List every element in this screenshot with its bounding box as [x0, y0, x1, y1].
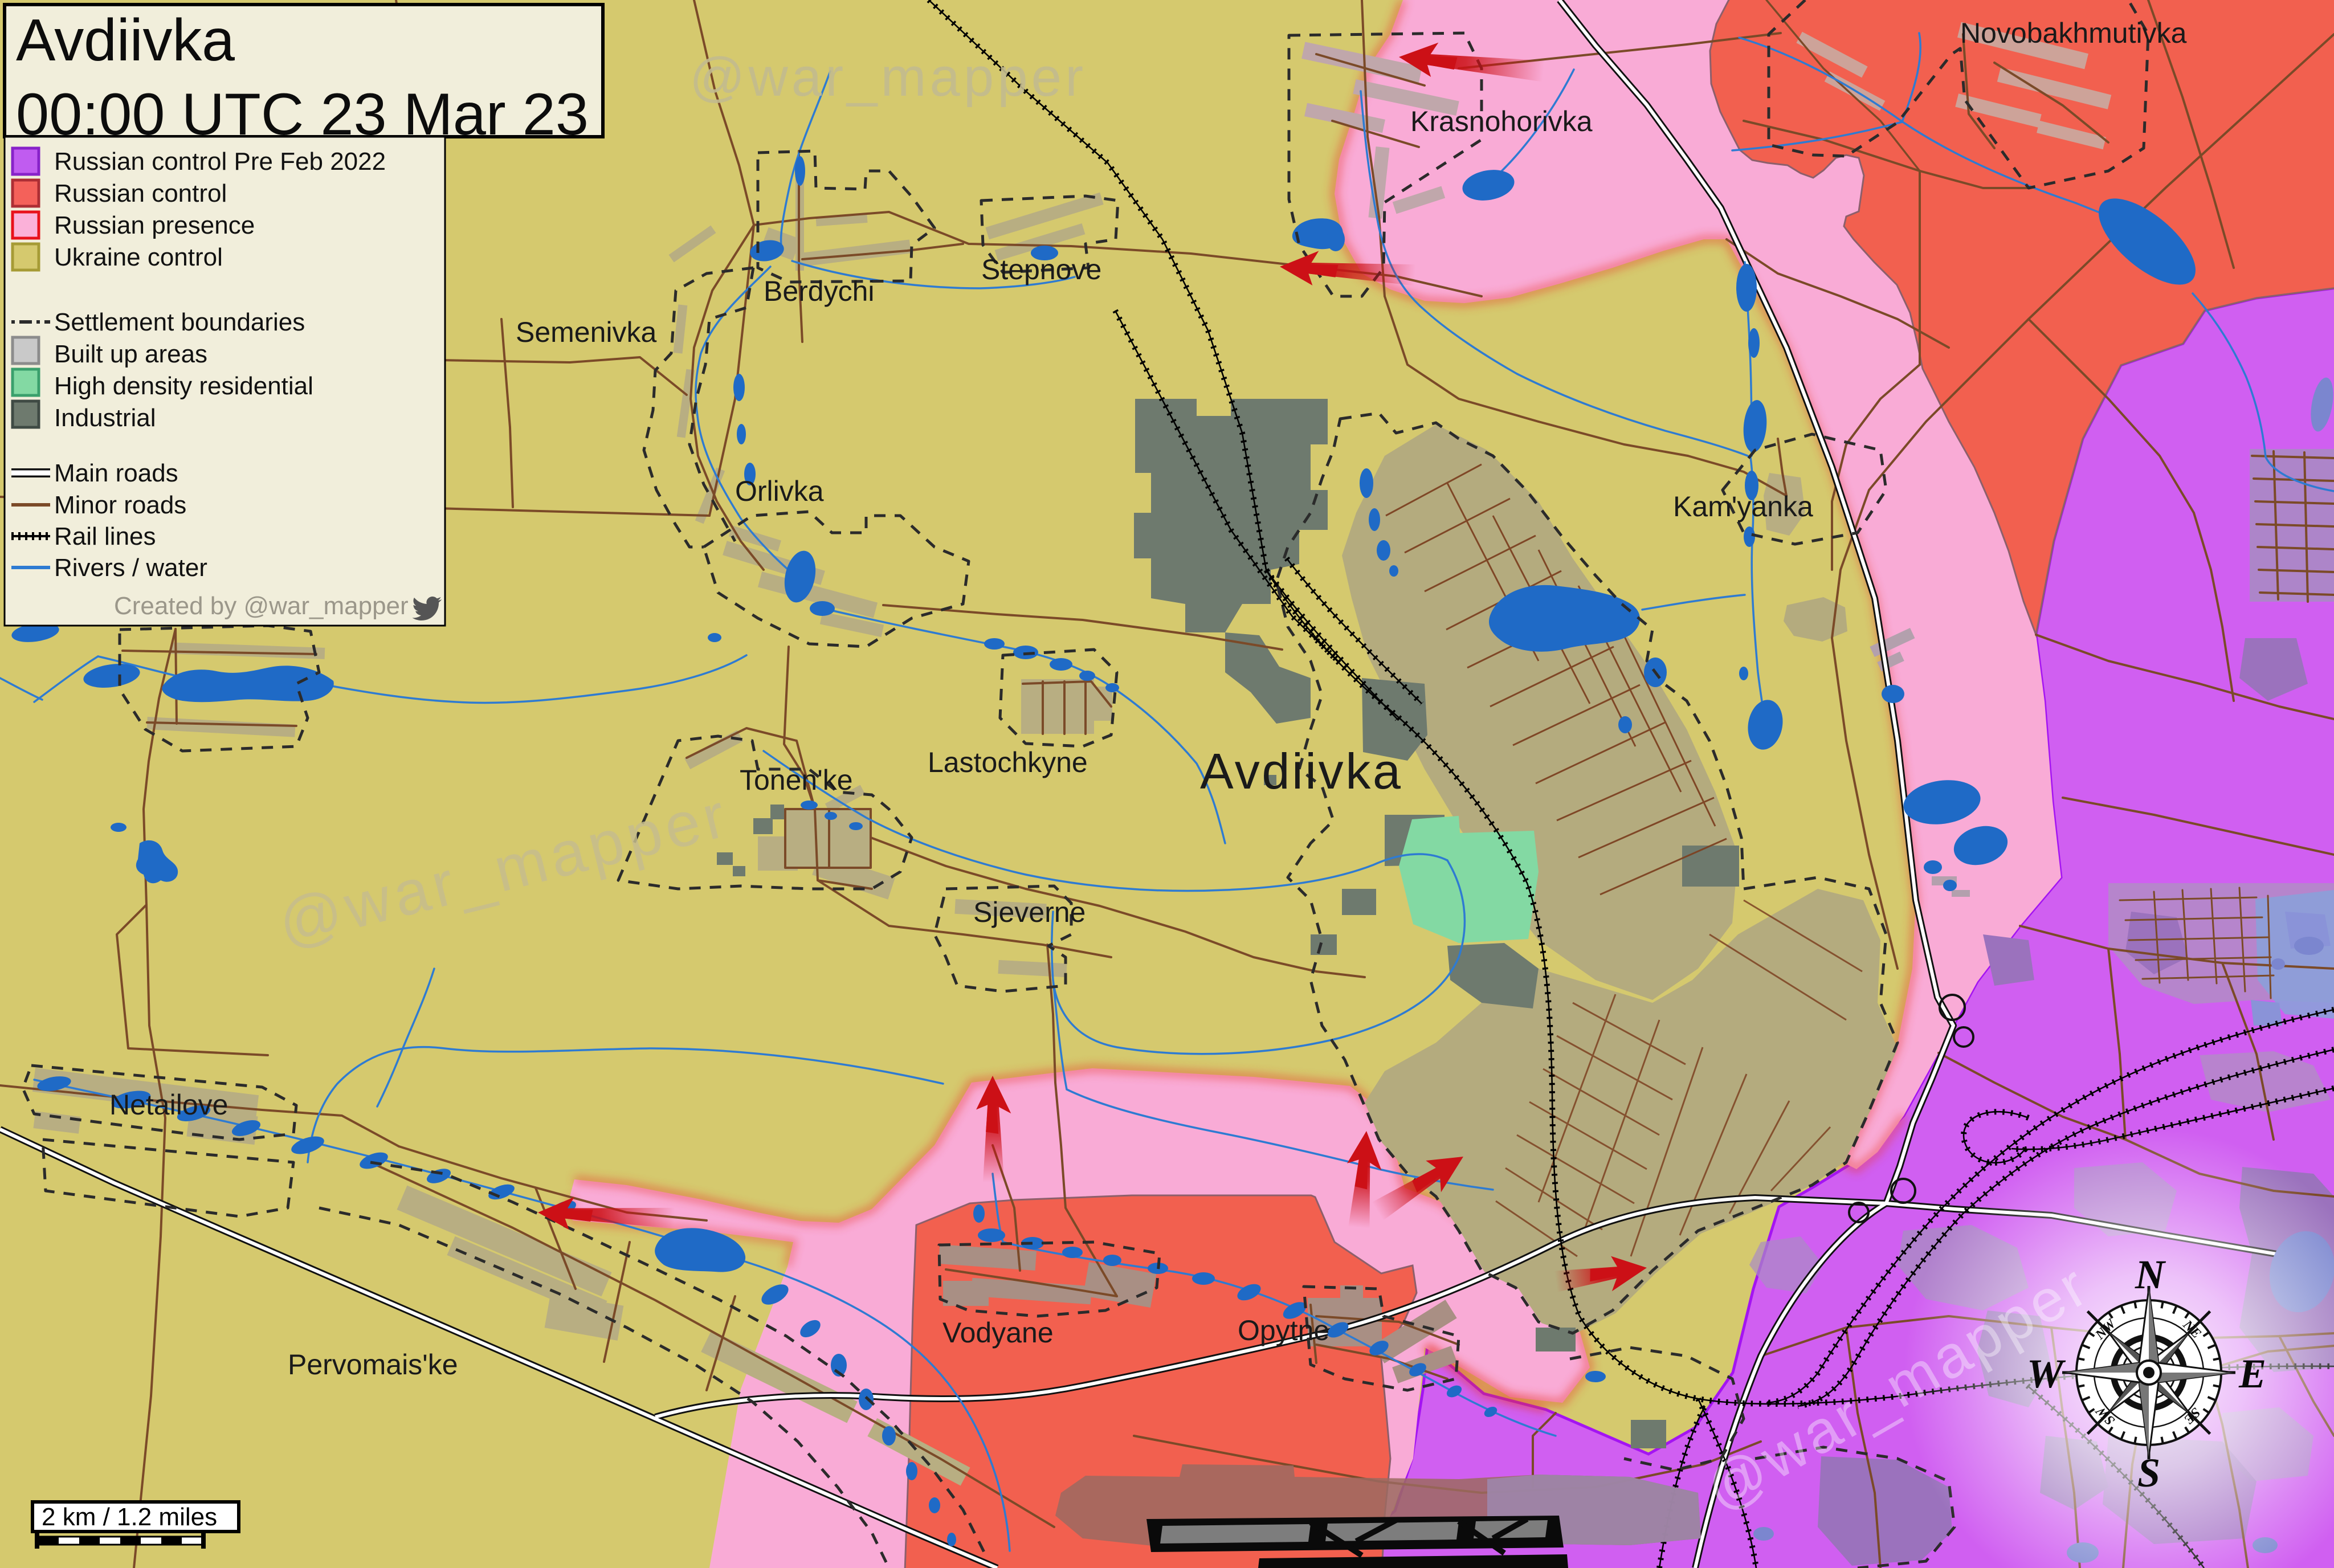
svg-text:Rivers / water: Rivers / water [54, 554, 207, 582]
svg-text:Novobakhmutivka: Novobakhmutivka [1960, 17, 2187, 49]
svg-text:2 km / 1.2 miles: 2 km / 1.2 miles [42, 1503, 217, 1531]
svg-text:Opytne: Opytne [1238, 1314, 1329, 1346]
svg-text:Created by @war_mapper: Created by @war_mapper [114, 592, 409, 620]
svg-text:Orlivka: Orlivka [735, 475, 824, 507]
svg-text:Minor roads: Minor roads [54, 491, 186, 519]
svg-text:Settlement boundaries: Settlement boundaries [54, 308, 305, 336]
svg-text:Berdychi: Berdychi [764, 275, 875, 307]
svg-text:N: N [2135, 1252, 2166, 1297]
svg-text:Tonen'ke: Tonen'ke [740, 764, 853, 796]
svg-text:Sjeverne: Sjeverne [973, 896, 1086, 928]
svg-text:Russian control: Russian control [54, 179, 227, 207]
svg-text:Netailove: Netailove [109, 1089, 228, 1121]
svg-text:Industrial: Industrial [54, 404, 156, 432]
svg-text:@war_mapper: @war_mapper [689, 47, 1087, 108]
svg-text:Kam'yanka: Kam'yanka [1673, 491, 1813, 522]
svg-text:Built up areas: Built up areas [54, 340, 207, 368]
svg-text:E: E [2238, 1351, 2266, 1396]
svg-text:Rail lines: Rail lines [54, 522, 156, 550]
svg-text:W: W [2027, 1351, 2066, 1396]
svg-text:Lastochkyne: Lastochkyne [928, 746, 1088, 778]
svg-text:Russian presence: Russian presence [54, 211, 255, 239]
svg-text:Avdiivka: Avdiivka [1200, 743, 1401, 799]
svg-text:High density residential: High density residential [54, 372, 313, 400]
svg-text:Ukraine control: Ukraine control [54, 243, 223, 271]
svg-text:Pervomais'ke: Pervomais'ke [288, 1349, 458, 1381]
svg-text:Avdiivka: Avdiivka [16, 7, 235, 73]
svg-text:Stepnove: Stepnove [981, 254, 1101, 285]
svg-text:Krasnohorivka: Krasnohorivka [1410, 105, 1593, 137]
svg-text:Semenivka: Semenivka [516, 316, 657, 348]
svg-text:S: S [2137, 1450, 2160, 1496]
svg-text:Russian control Pre Feb 2022: Russian control Pre Feb 2022 [54, 148, 386, 175]
svg-text:Main roads: Main roads [54, 459, 178, 487]
svg-text:Vodyane: Vodyane [942, 1317, 1054, 1349]
